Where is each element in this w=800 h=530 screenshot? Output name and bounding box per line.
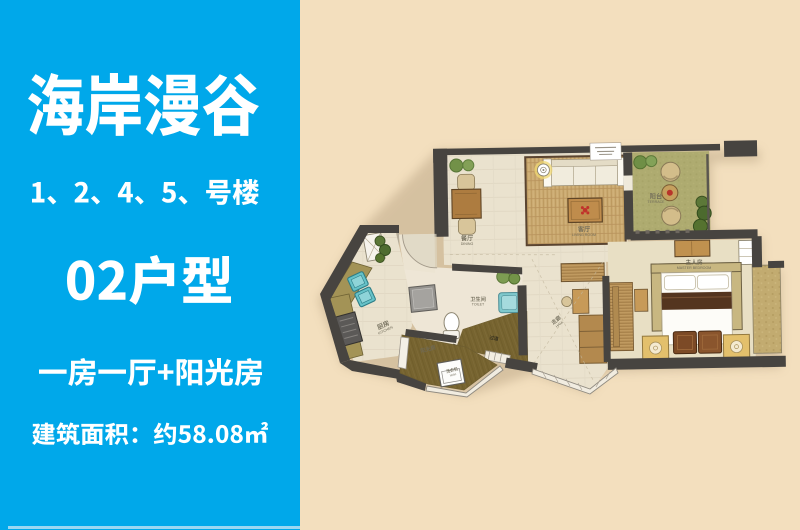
svg-text:TERRACE: TERRACE [647, 200, 665, 204]
svg-text:MASTER BEDROOM: MASTER BEDROOM [677, 266, 712, 270]
svg-text:TOILET: TOILET [472, 303, 485, 307]
svg-text:DINING: DINING [461, 242, 474, 246]
svg-text:LIVING ROOM: LIVING ROOM [572, 233, 596, 237]
